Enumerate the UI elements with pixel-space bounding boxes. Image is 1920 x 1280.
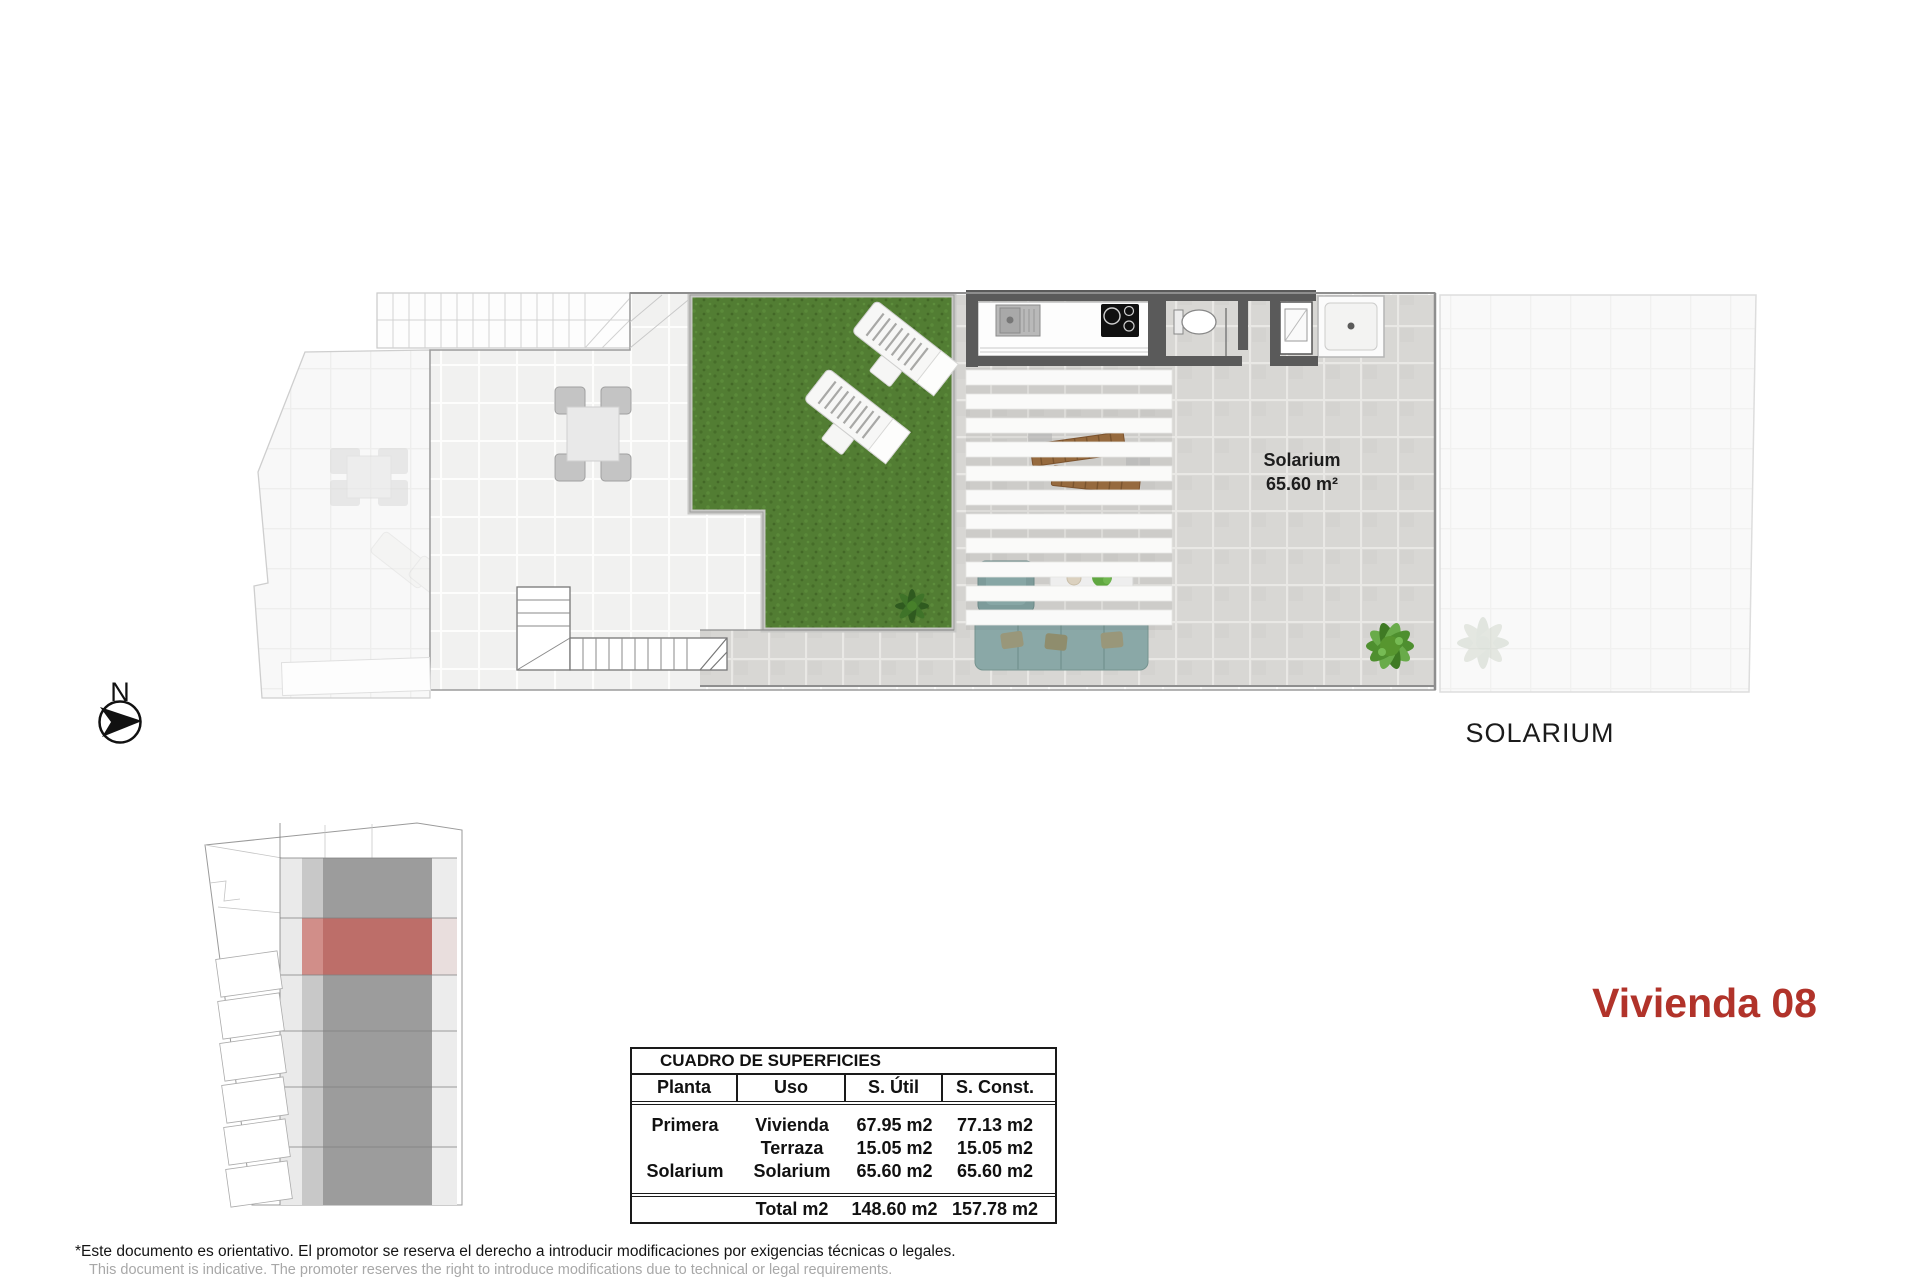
- bath-cabinet: [1280, 302, 1312, 354]
- cell-uso: Vivienda: [738, 1114, 846, 1137]
- cell-planta: Solarium: [632, 1160, 738, 1183]
- pergola-slats: [966, 370, 1172, 625]
- site-unit-highlight: [280, 918, 457, 975]
- disclaimer-es: *Este documento es orientativo. El promo…: [75, 1243, 1175, 1261]
- induction-hob: [1101, 304, 1139, 337]
- table-row: Solarium Solarium 65.60 m2 65.60 m2: [632, 1160, 1055, 1183]
- surfaces-table-title: CUADRO DE SUPERFICIES: [632, 1049, 1055, 1075]
- total-util: 148.60 m2: [846, 1197, 943, 1222]
- total-const: 157.78 m2: [943, 1197, 1047, 1222]
- floor-plan: Solarium 65.60 m²: [250, 288, 1762, 703]
- cell-const: 15.05 m2: [943, 1137, 1047, 1160]
- room-label-area: 65.60 m²: [1266, 474, 1338, 494]
- north-arrow: N: [100, 677, 143, 743]
- disclaimer-en: This document is indicative. The promote…: [75, 1262, 1175, 1278]
- col-header-util: S. Útil: [846, 1075, 943, 1101]
- site-unit-row: [280, 975, 457, 1031]
- cell-planta: Primera: [632, 1114, 738, 1137]
- right-neighbour-unit: [1440, 295, 1756, 692]
- site-unit-row: [280, 1087, 457, 1147]
- garden-plant: [895, 589, 929, 623]
- col-header-const: S. Const.: [943, 1075, 1047, 1101]
- total-label: Total m2: [738, 1197, 846, 1222]
- surfaces-table-total-row: Total m2 148.60 m2 157.78 m2: [632, 1193, 1055, 1222]
- faded-palm-plant: [1457, 617, 1509, 669]
- surfaces-table-body: Primera Vivienda 67.95 m2 77.13 m2 Terra…: [632, 1105, 1055, 1193]
- shower-tray: [1318, 296, 1384, 357]
- table-row: Primera Vivienda 67.95 m2 77.13 m2: [632, 1114, 1055, 1137]
- cell-uso: Solarium: [738, 1160, 846, 1183]
- cell-planta: [632, 1137, 738, 1160]
- site-key-plan: N: [60, 655, 480, 1215]
- site-neighbour-block: [281, 657, 430, 695]
- cell-uso: Terraza: [738, 1137, 846, 1160]
- site-unit-row: [280, 858, 457, 918]
- cell-util: 67.95 m2: [846, 1114, 943, 1137]
- col-header-uso: Uso: [738, 1075, 846, 1101]
- col-header-planta: Planta: [632, 1075, 738, 1101]
- cell-util: 15.05 m2: [846, 1137, 943, 1160]
- site-unit-row: [280, 1147, 457, 1205]
- surfaces-table: CUADRO DE SUPERFICIES Planta Uso S. Útil…: [630, 1047, 1057, 1224]
- plan-caption: SOLARIUM: [1440, 718, 1640, 749]
- disclaimer: *Este documento es orientativo. El promo…: [75, 1243, 1175, 1278]
- room-label-name: Solarium: [1263, 450, 1340, 470]
- upper-stairs: [377, 293, 630, 348]
- table-row: Terraza 15.05 m2 15.05 m2: [632, 1137, 1055, 1160]
- site-building-units: [280, 823, 457, 1205]
- dwelling-title: Vivienda 08: [1545, 980, 1817, 1027]
- cell-util: 65.60 m2: [846, 1160, 943, 1183]
- cell-const: 77.13 m2: [943, 1114, 1047, 1137]
- surfaces-table-header: Planta Uso S. Útil S. Const.: [632, 1075, 1055, 1105]
- kitchen-sink: [996, 305, 1040, 336]
- pergola: [966, 368, 1172, 670]
- site-unit-row: [280, 1031, 457, 1087]
- cell-const: 65.60 m2: [943, 1160, 1047, 1183]
